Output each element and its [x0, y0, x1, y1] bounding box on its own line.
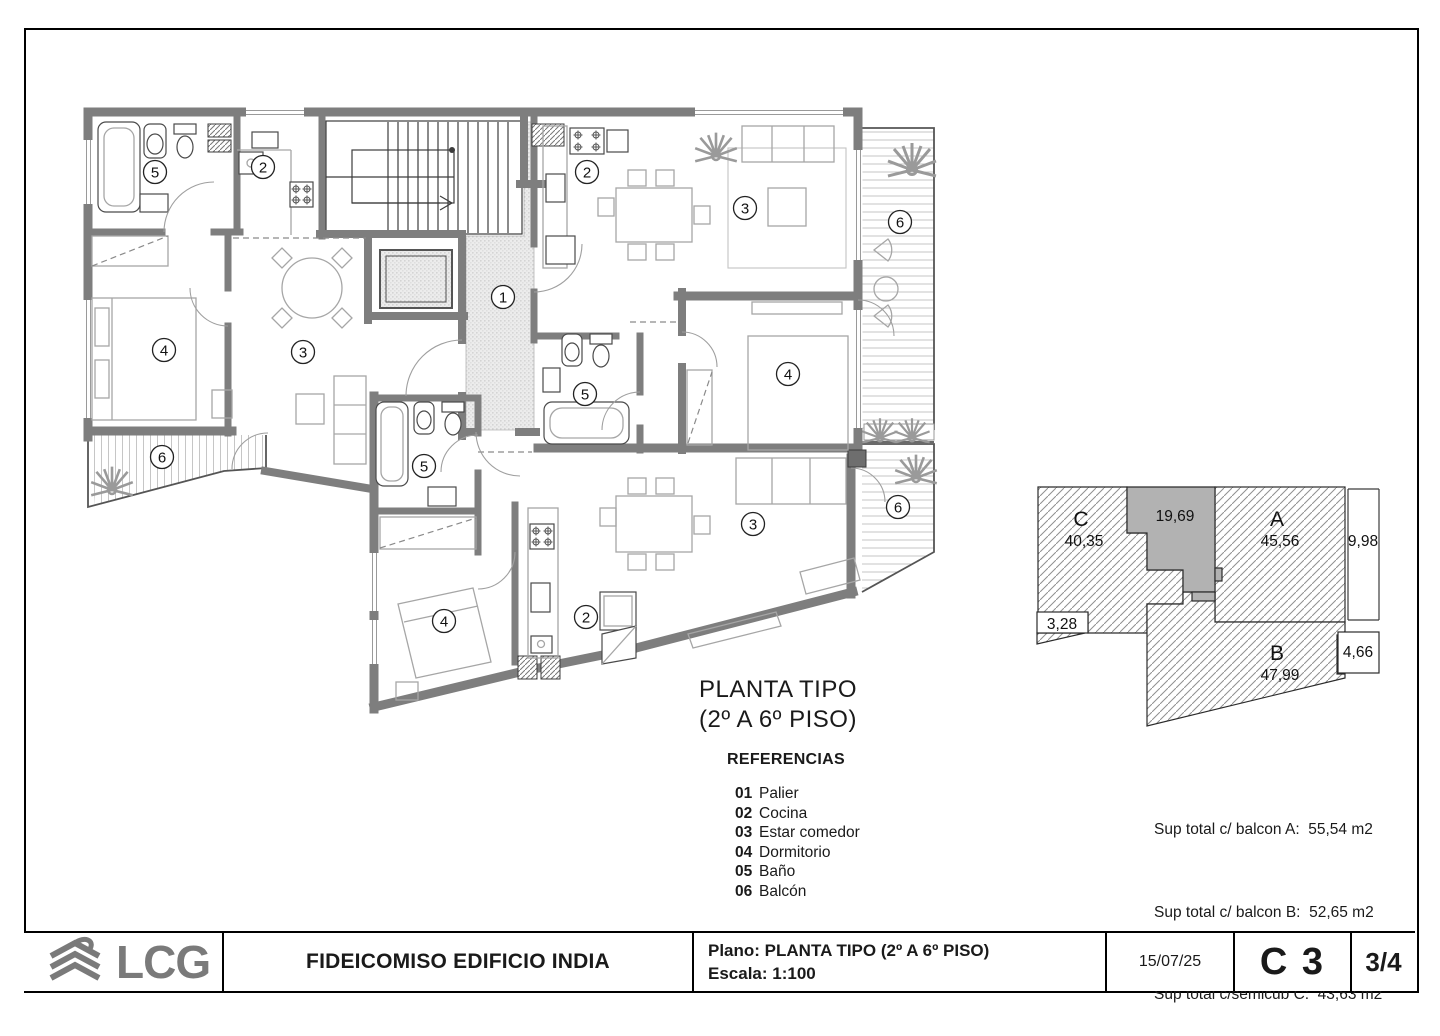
- cabinet: [252, 132, 278, 148]
- headboard: [752, 302, 842, 314]
- svg-text:3: 3: [749, 516, 757, 533]
- stove-icon: [290, 182, 313, 207]
- room-label: 2: [575, 606, 598, 629]
- logo-text: LCG: [116, 935, 210, 989]
- toilet-icon: [590, 334, 612, 344]
- svg-text:5: 5: [581, 386, 589, 403]
- toilet-icon: [174, 124, 196, 134]
- lcg-logo-icon: [44, 936, 106, 988]
- dining-table: [616, 188, 692, 242]
- plan-subtitle: (2º A 6º PISO): [628, 706, 928, 734]
- bathroom-b: [376, 402, 464, 506]
- svg-text:2: 2: [582, 609, 590, 626]
- surface-total-b: Sup total c/ balcon B: 52,65 m2: [1154, 899, 1382, 927]
- room-label: 5: [413, 455, 436, 478]
- svg-text:5: 5: [420, 458, 428, 475]
- reference-item: 04Dormitorio: [735, 843, 860, 863]
- plano-label: Plano: PLANTA TIPO (2º A 6º PISO): [708, 939, 989, 962]
- svg-text:4,66: 4,66: [1343, 644, 1373, 661]
- kitchen-b: [528, 508, 636, 664]
- svg-text:A: A: [1270, 508, 1284, 531]
- coffee-table: [768, 188, 806, 226]
- date-cell: 15/07/25: [1105, 933, 1233, 991]
- project-name: FIDEICOMISO EDIFICIO INDIA: [222, 933, 692, 991]
- reference-item: 05Baño: [735, 862, 860, 882]
- stove-icon: [530, 524, 554, 549]
- bedroom-a: [687, 302, 848, 450]
- locker: [600, 592, 636, 630]
- stairs: [326, 121, 522, 234]
- cabinet: [546, 236, 575, 264]
- vanity: [543, 368, 560, 392]
- svg-text:3: 3: [299, 344, 307, 361]
- sofa: [334, 376, 366, 464]
- svg-text:6: 6: [894, 499, 902, 516]
- surface-totals: Sup total c/ balcon A: 55,54 m2 Sup tota…: [1154, 761, 1382, 1036]
- room-label: 4: [153, 339, 176, 362]
- room-label: 5: [144, 161, 167, 184]
- svg-text:B: B: [1270, 642, 1284, 665]
- sofa: [742, 126, 834, 162]
- room-label: 3: [292, 341, 315, 364]
- room-label: 4: [777, 363, 800, 386]
- svg-text:6: 6: [158, 449, 166, 466]
- svg-text:47,99: 47,99: [1261, 667, 1300, 684]
- svg-text:2: 2: [259, 159, 267, 176]
- svg-text:40,35: 40,35: [1065, 533, 1104, 550]
- logo-cell: LCG: [24, 933, 222, 991]
- kitchen-c: [237, 132, 313, 235]
- room-label: 6: [889, 211, 912, 234]
- svg-text:45,56: 45,56: [1261, 533, 1300, 550]
- svg-text:5: 5: [151, 164, 159, 181]
- svg-text:4: 4: [784, 366, 792, 383]
- references-heading: REFERENCIAS: [727, 751, 845, 769]
- reference-item: 03Estar comedor: [735, 823, 860, 843]
- plant-icon: [695, 133, 737, 162]
- sofa: [736, 458, 846, 504]
- vanity: [428, 487, 456, 506]
- escala-label: Escala: 1:100: [708, 962, 816, 985]
- svg-text:1: 1: [499, 289, 507, 306]
- room-label: 1: [492, 286, 515, 309]
- key-dim-lines: [1348, 489, 1379, 620]
- svg-text:3,28: 3,28: [1047, 616, 1077, 633]
- stove-icon: [570, 128, 604, 154]
- reference-item: 06Balcón: [735, 882, 860, 902]
- reference-item: 01Palier: [735, 784, 860, 804]
- ottoman: [296, 394, 324, 424]
- svg-text:3: 3: [741, 200, 749, 217]
- svg-text:19,69: 19,69: [1156, 508, 1195, 525]
- svg-text:4: 4: [160, 342, 168, 359]
- plan-title: PLANTA TIPO: [628, 676, 928, 704]
- room-label: 2: [252, 156, 275, 179]
- kitchen-a: [543, 126, 628, 268]
- svg-text:6: 6: [896, 214, 904, 231]
- vanity: [140, 194, 168, 212]
- sink-icon: [531, 636, 552, 653]
- svg-text:9,98: 9,98: [1348, 533, 1378, 550]
- sheet-number: 3/4: [1350, 933, 1415, 991]
- bedroom-c: [92, 236, 232, 420]
- room-label: 3: [742, 513, 765, 536]
- balcony-left: [88, 435, 266, 507]
- dining-table: [616, 496, 692, 552]
- plano-cell: Plano: PLANTA TIPO (2º A 6º PISO) Escala…: [692, 933, 1105, 991]
- fridge-icon: [546, 174, 565, 202]
- room-label: 6: [887, 496, 910, 519]
- living-c: [272, 248, 366, 464]
- sheet-code: C 3: [1233, 933, 1350, 991]
- oven-icon: [531, 583, 550, 612]
- room-label: 5: [574, 383, 597, 406]
- key-diagram: C 40,35 19,69 A 45,56 B 47,99 3,28 9,98 …: [1037, 487, 1379, 726]
- svg-text:C: C: [1073, 508, 1088, 531]
- room-label: 2: [576, 161, 599, 184]
- living-a: [598, 126, 846, 268]
- bed: [748, 336, 848, 450]
- elevator: [380, 250, 452, 308]
- room-label: 6: [151, 446, 174, 469]
- surface-total-a: Sup total c/ balcon A: 55,54 m2: [1154, 816, 1382, 844]
- svg-text:4: 4: [440, 613, 448, 630]
- reference-item: 02Cocina: [735, 804, 860, 824]
- toilet-icon: [442, 402, 464, 412]
- svg-text:2: 2: [583, 164, 591, 181]
- references-list: 01Palier 02Cocina 03Estar comedor 04Dorm…: [735, 784, 860, 901]
- round-table: [282, 258, 342, 318]
- cabinet: [607, 130, 628, 152]
- room-label: 3: [734, 197, 757, 220]
- title-block: LCG FIDEICOMISO EDIFICIO INDIA Plano: PL…: [24, 931, 1415, 991]
- room-label: 4: [433, 610, 456, 633]
- bedroom-b: [380, 517, 491, 700]
- bed: [92, 298, 196, 420]
